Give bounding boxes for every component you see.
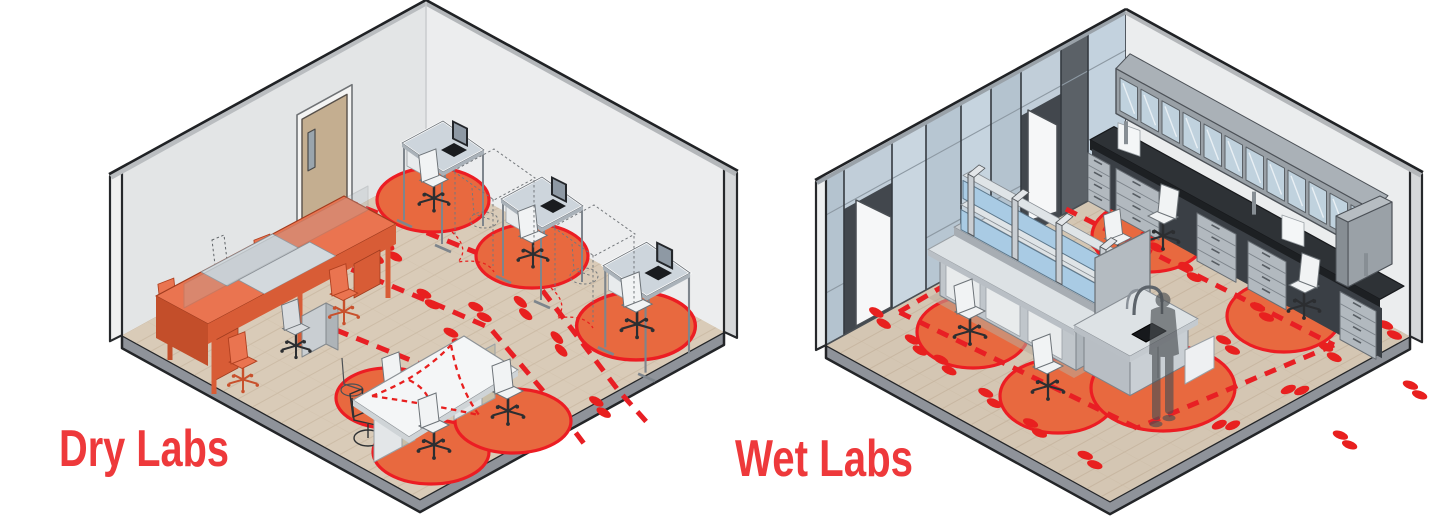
svg-text:Dry Labs: Dry Labs <box>59 420 229 478</box>
svg-text:Wet Labs: Wet Labs <box>735 430 913 488</box>
